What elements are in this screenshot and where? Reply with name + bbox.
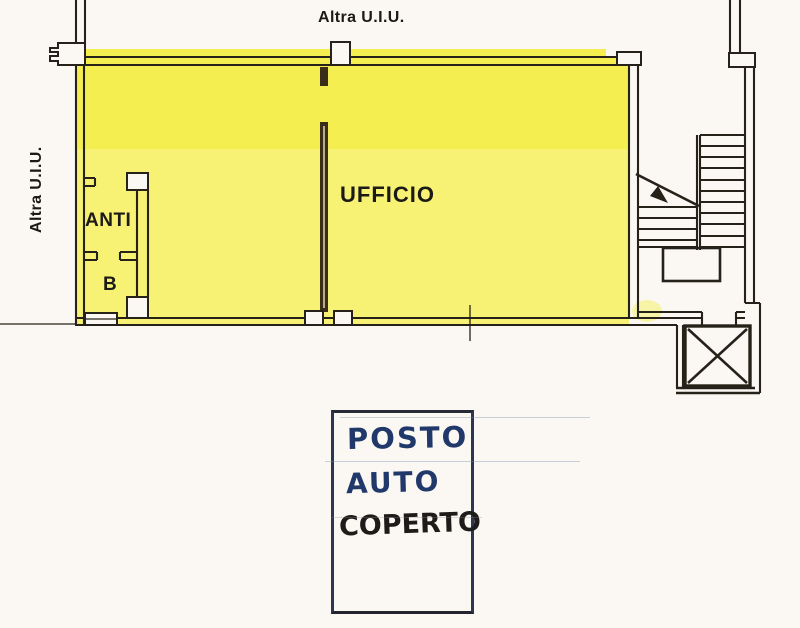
annotation-line-posto: POSTO (347, 420, 469, 456)
stair-landing (663, 248, 720, 281)
scan-artifact-line (332, 517, 482, 518)
label-other-unit-left: Altra U.I.U. (28, 146, 46, 233)
door-opening-top-wall (331, 42, 350, 65)
label-room-b: B (103, 274, 117, 296)
pier-far-right (729, 53, 755, 67)
annotation-line-coperto: COPERTO (339, 507, 482, 543)
annotation-line-auto: AUTO (346, 465, 441, 500)
scanned-floor-plan-page: Altra U.I.U. Altra U.I.U. ANTI B UFFICIO… (0, 0, 800, 628)
elevator-shaft (685, 326, 750, 386)
scan-artifact-line (325, 461, 580, 462)
pier-top-right (617, 52, 641, 65)
label-other-unit-top: Altra U.I.U. (318, 9, 405, 27)
staircase (636, 135, 745, 281)
scan-artifact-line (340, 417, 590, 418)
label-room-anti: ANTI (85, 210, 131, 232)
parking-annotation-box: POSTO AUTO COPERTO (331, 410, 474, 614)
corner-pier-top-left (50, 43, 85, 65)
stair-break-line (636, 174, 699, 206)
label-room-ufficio: UFFICIO (340, 182, 435, 208)
